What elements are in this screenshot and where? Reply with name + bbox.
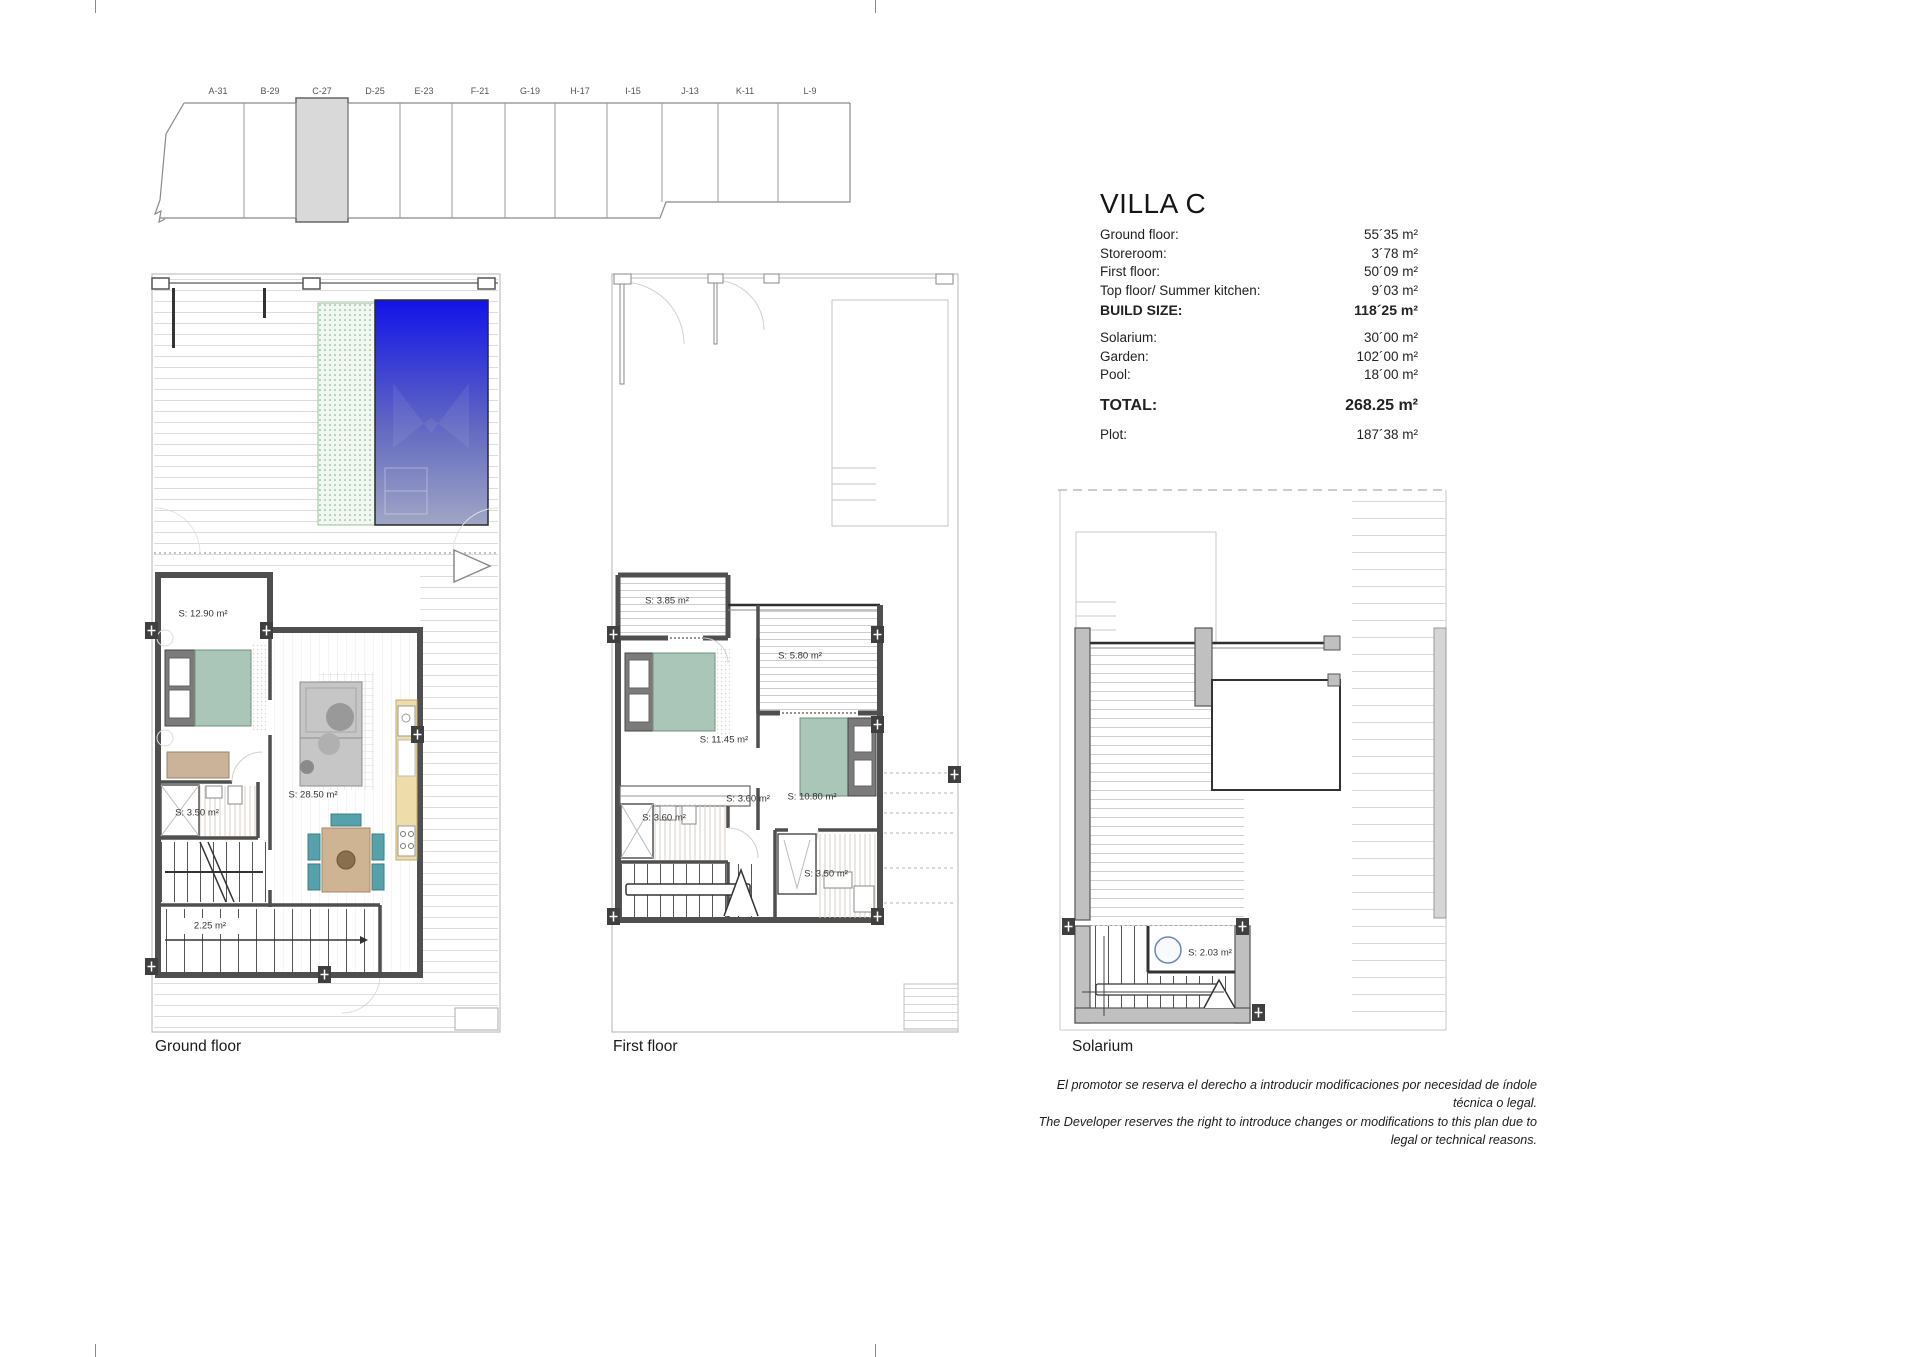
unit-label: I-15	[625, 86, 641, 96]
room-area-label: S: 3.85 m²	[645, 596, 689, 607]
legal-disclaimer: El promotor se reserva el derecho a intr…	[1037, 1076, 1537, 1149]
area-row-value: 50´09 m²	[1364, 263, 1418, 282]
area-row: Top floor/ Summer kitchen: 9´03 m²	[1100, 282, 1418, 301]
area-row-label: Storeroom:	[1100, 245, 1167, 264]
room-area-label: S: 28.50 m²	[288, 790, 337, 801]
area-row-label: Solarium:	[1100, 329, 1157, 348]
unit-label: D-25	[365, 86, 385, 96]
area-row-label: Pool:	[1100, 366, 1131, 385]
unit-label: H-17	[570, 86, 590, 96]
area-row-label: TOTAL:	[1100, 393, 1157, 419]
area-row-value: 102´00 m²	[1356, 348, 1418, 367]
unit-label: C-27	[312, 86, 332, 96]
area-row-label: First floor:	[1100, 263, 1160, 282]
legal-disclaimer-es: El promotor se reserva el derecho a intr…	[1037, 1076, 1537, 1113]
room-area-label: S: 3.60 m²	[726, 794, 770, 805]
area-row-value: 9´03 m²	[1371, 282, 1418, 301]
room-area-label: S: 3.60 m²	[642, 813, 686, 824]
area-row: Ground floor: 55´35 m²	[1100, 226, 1418, 245]
solarium-ghost-outline	[1076, 532, 1216, 644]
room-area-label: S: 10.80 m²	[787, 792, 836, 803]
site-plan-unit-c27-highlight	[296, 98, 348, 222]
crop-mark	[95, 1344, 96, 1357]
pool	[375, 300, 488, 525]
area-row-label: Garden:	[1100, 348, 1149, 367]
room-area-label: S: 5.80 m²	[778, 651, 822, 662]
first-railing-posts	[614, 274, 953, 284]
area-row-build-size: BUILD SIZE: 118´25 m²	[1100, 300, 1418, 320]
area-row: Plot: 187´38 m²	[1100, 426, 1418, 445]
unit-label: G-19	[520, 86, 540, 96]
top-floor-room-outline	[1212, 680, 1340, 790]
plan-caption-first: First floor	[613, 1038, 678, 1056]
solarium-plan	[1056, 484, 1452, 1044]
first-ghost-outline	[614, 278, 953, 526]
area-row-value: 18´00 m²	[1364, 366, 1418, 385]
area-row: Solarium: 30´00 m²	[1100, 329, 1418, 348]
unit-label: J-13	[681, 86, 699, 96]
site-plan-outline	[155, 103, 850, 222]
area-row-label: BUILD SIZE:	[1100, 300, 1182, 320]
room-area-label: S: 12.90 m²	[178, 609, 227, 620]
room-area-label: S: 11.45 m²	[700, 735, 748, 746]
area-row-value: 187´38 m²	[1356, 426, 1418, 445]
area-row-label: Top floor/ Summer kitchen:	[1100, 282, 1261, 301]
room-area-label: 2.25 m²	[194, 921, 226, 932]
unit-label: K-11	[736, 86, 754, 96]
garden-lawn-hatch	[318, 303, 375, 525]
site-plan	[150, 82, 860, 232]
neighbor-deck	[1352, 494, 1446, 1026]
area-row-value: 268.25 m²	[1345, 393, 1418, 419]
unit-label: A-31	[208, 86, 227, 96]
area-row-value: 55´35 m²	[1364, 226, 1418, 245]
area-row-label: Ground floor:	[1100, 226, 1179, 245]
plan-caption-ground: Ground floor	[155, 1038, 241, 1056]
legal-disclaimer-en: The Developer reserves the right to intr…	[1037, 1113, 1537, 1150]
room-area-label: S: 3.50 m²	[804, 869, 848, 880]
crop-mark	[875, 0, 876, 13]
area-row-value: 3´78 m²	[1371, 245, 1418, 264]
area-table: Ground floor: 55´35 m² Storeroom: 3´78 m…	[1100, 226, 1418, 444]
plan-sheet: A-31 B-29 C-27 D-25 E-23 F-21 G-19 H-17 …	[0, 0, 1920, 1357]
unit-label: B-29	[260, 86, 279, 96]
area-row: Pool: 18´00 m²	[1100, 366, 1418, 385]
area-row-label: Plot:	[1100, 426, 1127, 445]
area-row-value: 118´25 m²	[1354, 300, 1418, 320]
first-right-deck	[884, 773, 958, 1030]
plan-caption-solarium: Solarium	[1072, 1038, 1133, 1056]
summer-kitchen-sink	[1155, 937, 1181, 963]
unit-label: E-23	[414, 86, 433, 96]
area-row: Storeroom: 3´78 m²	[1100, 245, 1418, 264]
room-area-label: S: 3.50 m²	[175, 808, 219, 819]
room-area-label: S: 2.03 m²	[1188, 948, 1232, 959]
area-row: Garden: 102´00 m²	[1100, 348, 1418, 367]
unit-label: F-21	[471, 86, 490, 96]
area-row-value: 30´00 m²	[1364, 329, 1418, 348]
area-row: First floor: 50´09 m²	[1100, 263, 1418, 282]
area-row-total: TOTAL: 268.25 m²	[1100, 393, 1418, 419]
unit-label: L-9	[803, 86, 816, 96]
page-title: VILLA C	[1100, 188, 1206, 220]
crop-mark	[95, 0, 96, 13]
crop-mark	[875, 1344, 876, 1357]
